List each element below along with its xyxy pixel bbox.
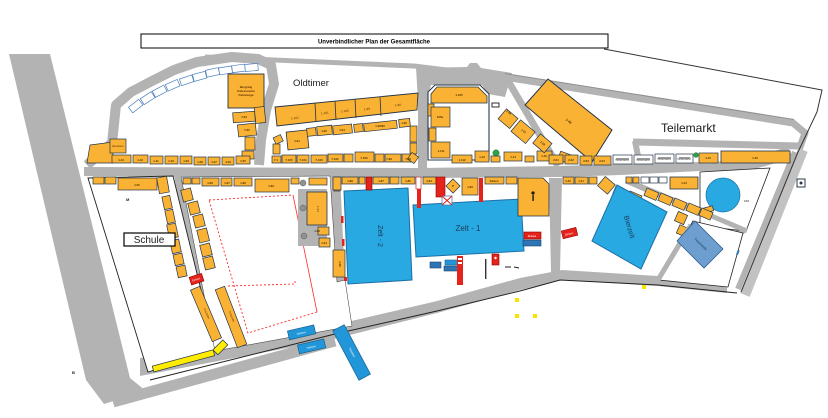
svg-text:1-88: 1-88 [347,179,353,183]
svg-text:1-60: 1-60 [338,261,342,267]
svg-text:1-112: 1-112 [459,158,466,162]
svg-text:1-05: 1-05 [240,159,246,163]
svg-text:1-111: 1-111 [438,149,445,153]
svg-text:Schule: Schule [134,235,165,246]
svg-text:7-1: 7-1 [274,158,278,162]
svg-text:2-04: 2-04 [599,159,605,163]
svg-text:1-46: 1-46 [752,156,758,160]
svg-text:105a: 105a [437,115,444,119]
svg-text:7-106: 7-106 [360,156,368,160]
svg-text:1-05: 1-05 [134,183,140,187]
svg-text:1-13: 1-13 [118,158,124,162]
svg-text:1-64: 1-64 [321,241,327,245]
svg-text:1-40: 1-40 [565,179,571,183]
svg-text:1-94: 1-94 [339,128,345,132]
svg-text:7-105: 7-105 [285,158,293,162]
svg-text:Zelt - 1: Zelt - 1 [456,224,481,233]
svg-text:1-87: 1-87 [378,179,384,183]
svg-text:7-99: 7-99 [386,157,392,161]
svg-text:1-12: 1-12 [137,158,143,162]
svg-text:7-102: 7-102 [331,157,339,161]
svg-text:Teilemarkt: Teilemarkt [636,158,650,162]
svg-text:1-08: 1-08 [197,160,203,164]
svg-text:1-06: 1-06 [225,160,231,164]
svg-text:Einlass: Einlass [528,234,537,238]
svg-text:1-100: 1-100 [341,109,349,114]
svg-text:Einweiser: Einweiser [112,144,123,148]
svg-text:1-16: 1-16 [541,154,547,158]
svg-text:Oldtimer: Oldtimer [293,78,329,89]
svg-text:1-69: 1-69 [268,184,274,188]
svg-text:1-66: 1-66 [207,181,213,185]
svg-text:Karten: Karten [490,179,499,183]
svg-text:1-83: 1-83 [467,185,473,189]
svg-text:1-85: 1-85 [405,179,411,183]
svg-text:B: B [72,370,75,375]
svg-text:1-45: 1-45 [705,156,711,160]
svg-text:1-10: 1-10 [168,159,174,163]
svg-text:Fahrzeuge: Fahrzeuge [238,93,253,97]
svg-text:1-102: 1-102 [291,116,299,121]
svg-text:Teilemarkt: Teilemarkt [677,157,691,161]
svg-text:1-61: 1-61 [316,206,320,212]
svg-text:1-91: 1-91 [294,139,300,143]
svg-text:1-12: 1-12 [479,155,485,159]
svg-text:1-90: 1-90 [401,121,407,125]
svg-text:2-02: 2-02 [568,158,574,162]
svg-text:1-84: 1-84 [426,179,432,183]
svg-text:7-103: 7-103 [315,158,323,162]
svg-text:1-09: 1-09 [183,159,189,163]
svg-text:1-14: 1-14 [510,155,516,159]
svg-text:1-99: 1-99 [364,107,371,112]
svg-text:2-01: 2-01 [553,158,559,162]
svg-text:1-67: 1-67 [224,181,230,185]
svg-text:7-63: 7-63 [241,115,247,119]
svg-text:1-105: 1-105 [455,93,463,97]
svg-text:1-92/93: 1-92/93 [375,124,385,128]
svg-text:1-68: 1-68 [240,181,246,185]
svg-text:7-98: 7-98 [405,157,411,161]
svg-text:1-11: 1-11 [153,159,159,163]
svg-text:7-104: 7-104 [299,158,307,162]
svg-text:Teilemarkt: Teilemarkt [661,121,716,135]
svg-text:7-60: 7-60 [244,128,250,132]
svg-text:1-101: 1-101 [321,111,329,116]
svg-text:1-63: 1-63 [314,229,320,233]
svg-text:P: P [452,184,454,188]
svg-text:1-95: 1-95 [321,129,327,133]
svg-text:2-03: 2-03 [583,159,589,163]
svg-text:Teilemarkt: Teilemarkt [615,158,629,162]
svg-text:1-44: 1-44 [681,181,687,185]
svg-text:1-07: 1-07 [211,160,217,164]
svg-text:Teilemarkt: Teilemarkt [657,157,671,161]
svg-text:Zelt - 2: Zelt - 2 [376,225,383,247]
svg-text:Unverbindlicher Plan der Gesam: Unverbindlicher Plan der Gesamtfläche [318,40,431,46]
svg-text:1-41: 1-41 [578,179,584,183]
svg-text:1-98: 1-98 [395,103,402,108]
svg-text:166: 166 [744,199,749,203]
